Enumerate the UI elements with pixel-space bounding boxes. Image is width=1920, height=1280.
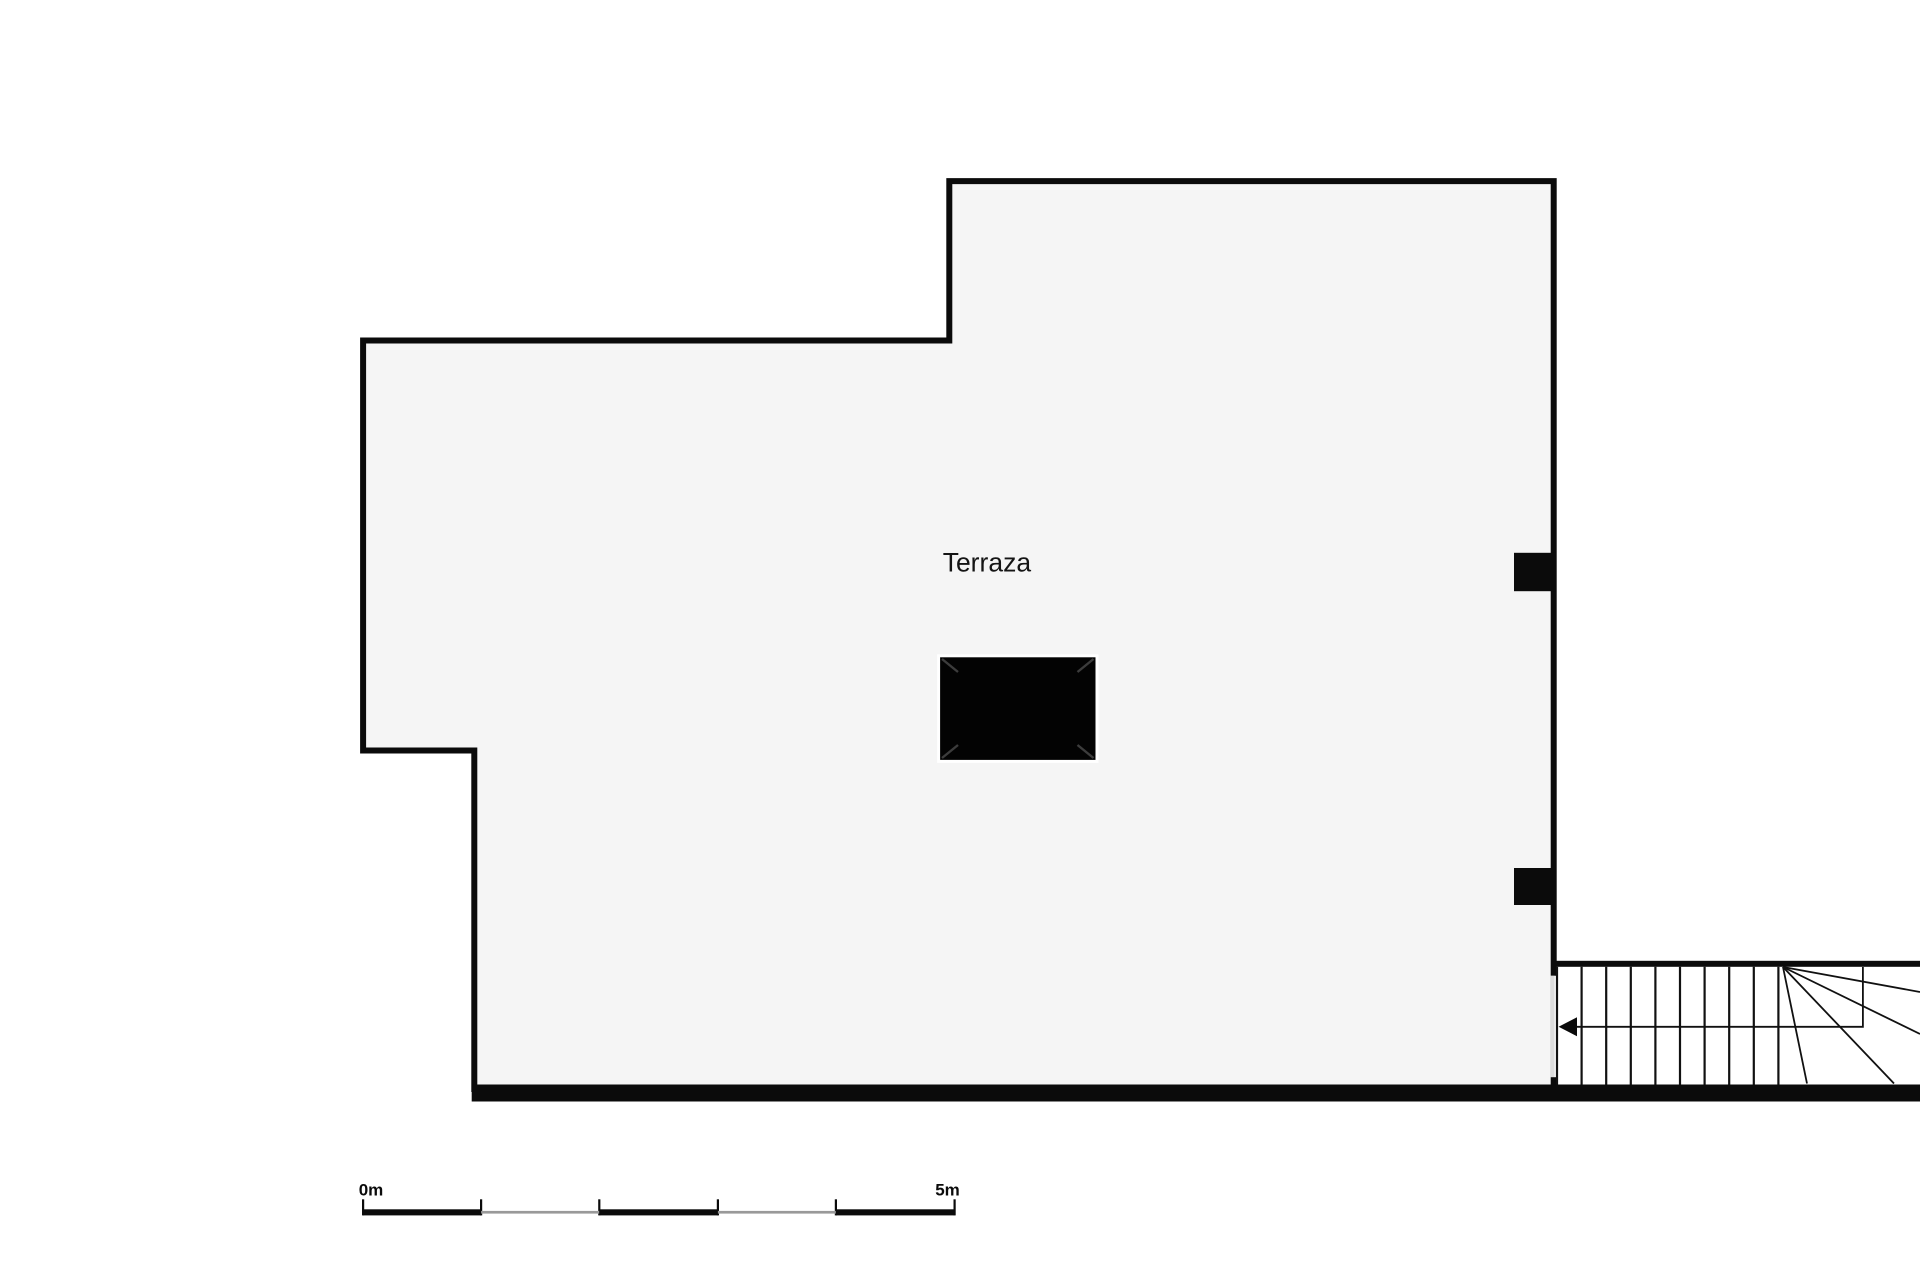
svg-text:0m: 0m [359, 1181, 384, 1200]
svg-text:Terraza: Terraza [943, 548, 1032, 578]
svg-text:5m: 5m [935, 1181, 960, 1200]
